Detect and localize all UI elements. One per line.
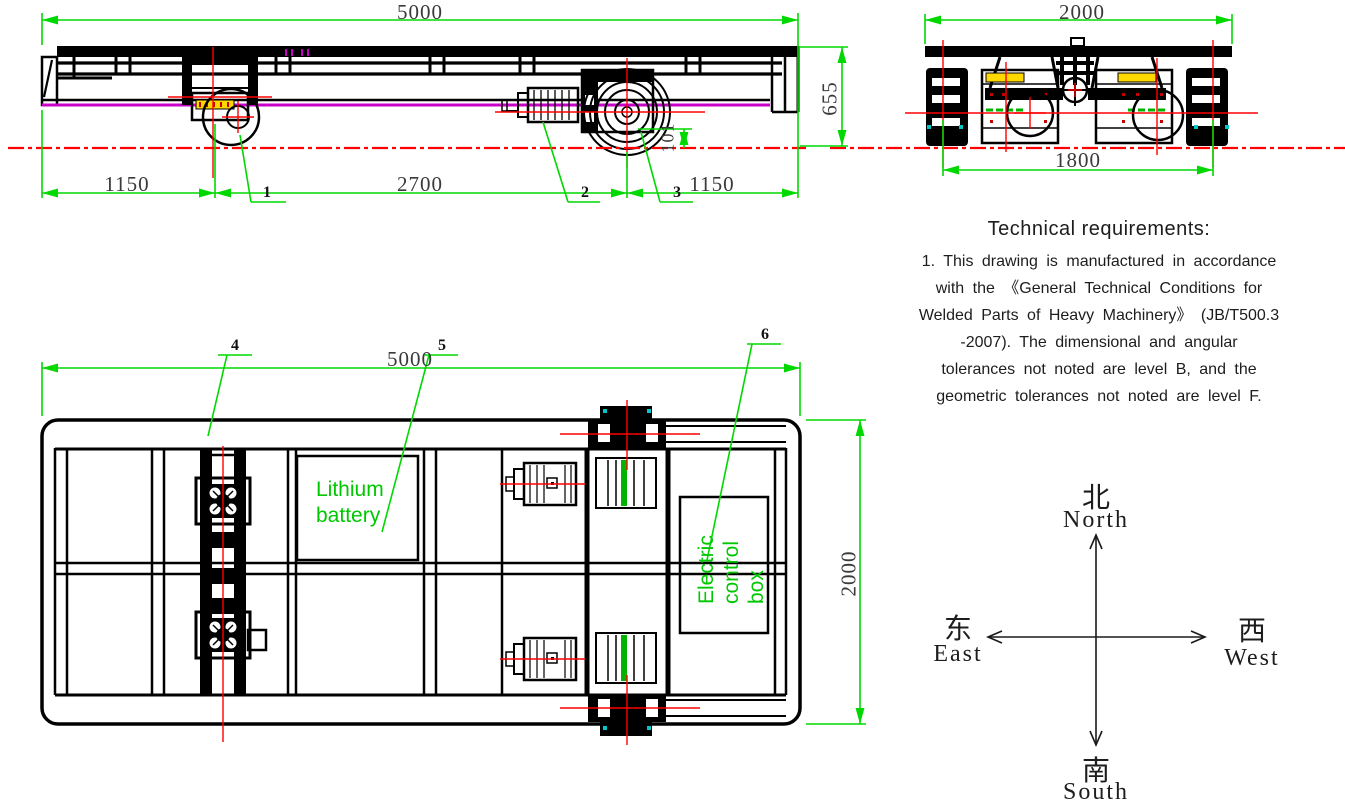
wheel-unit-left: [926, 68, 1058, 146]
drawing-canvas: 5000 1150 2700 1150 655 101 2000 1800 50…: [0, 0, 1345, 801]
drive-wheel-bottom-plan: [588, 694, 786, 736]
compass-west-en: West: [1212, 645, 1292, 672]
battery-label-line2: battery: [316, 503, 384, 529]
compass-north-en: North: [1056, 507, 1136, 534]
control-label-line3: box: [744, 484, 769, 604]
control-label-line2: control: [719, 484, 744, 604]
dim-end-width: 2000: [1042, 0, 1122, 25]
compass-south-en: South: [1056, 779, 1136, 801]
dim-side-height: 655: [818, 74, 843, 124]
dim-end-gauge: 1800: [1038, 148, 1118, 173]
drive-motor-top-plan: [506, 458, 656, 508]
tech-line-5: tolerances not noted are level B, and th…: [860, 356, 1338, 383]
dim-side-total: 5000: [380, 0, 460, 25]
dim-side-center: 2700: [380, 172, 460, 197]
motor-nameplate: [986, 73, 1024, 82]
dim-side-left: 1150: [87, 172, 167, 197]
dim-plan-width: 2000: [837, 544, 862, 604]
battery-label-line1: Lithium: [316, 477, 384, 503]
callout-2: 2: [574, 184, 596, 202]
drive-wheel-top-plan: [588, 406, 786, 448]
compass-east-en: East: [918, 641, 998, 668]
callout-1: 1: [256, 184, 278, 202]
tech-line-6: geometric tolerances not noted are level…: [860, 383, 1338, 410]
wheel-unit-right: [1096, 68, 1228, 146]
callout-5: 5: [431, 337, 453, 355]
tech-line-2: with the 《General Technical Conditions f…: [860, 275, 1338, 302]
technical-requirements: Technical requirements: 1. This drawing …: [860, 218, 1338, 410]
electric-control-box-label: Electric control box: [694, 484, 772, 604]
tech-line-4: -2007). The dimensional and angular: [860, 329, 1338, 356]
callout-4: 4: [224, 337, 246, 355]
lithium-battery-label: Lithium battery: [316, 477, 384, 529]
control-label-line1: Electric: [694, 484, 719, 604]
compass-west-cn: 西: [1222, 609, 1282, 649]
drive-motor-bottom-plan: [506, 633, 656, 683]
idle-wheel-channel-plan: [196, 449, 266, 695]
compass-rose: [988, 535, 1205, 745]
cyan-marks: [927, 125, 1229, 129]
end-view: [925, 38, 1232, 146]
callout-3: 3: [666, 184, 688, 202]
plan-view: [42, 406, 800, 736]
callout-6: 6: [754, 326, 776, 344]
dim-wheel-rail: 101: [658, 121, 679, 155]
tech-line-3: Welded Parts of Heavy Machinery》 (JB/T50…: [860, 302, 1338, 329]
plan-view-centerlines: [223, 400, 700, 745]
tech-line-1: 1. This drawing is manufactured in accor…: [860, 248, 1338, 275]
tech-requirements-title: Technical requirements:: [860, 218, 1338, 241]
motor-nameplate: [1118, 73, 1156, 82]
